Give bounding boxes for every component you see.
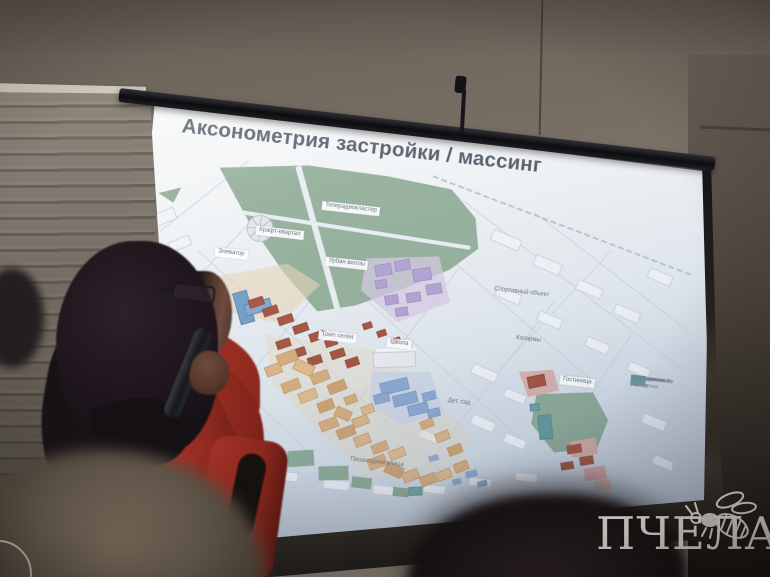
watermark-pchela: ПЧЕЛА [596,511,770,556]
presentation-room-photo: Аксонометрия застройки / массинг [0,0,770,577]
